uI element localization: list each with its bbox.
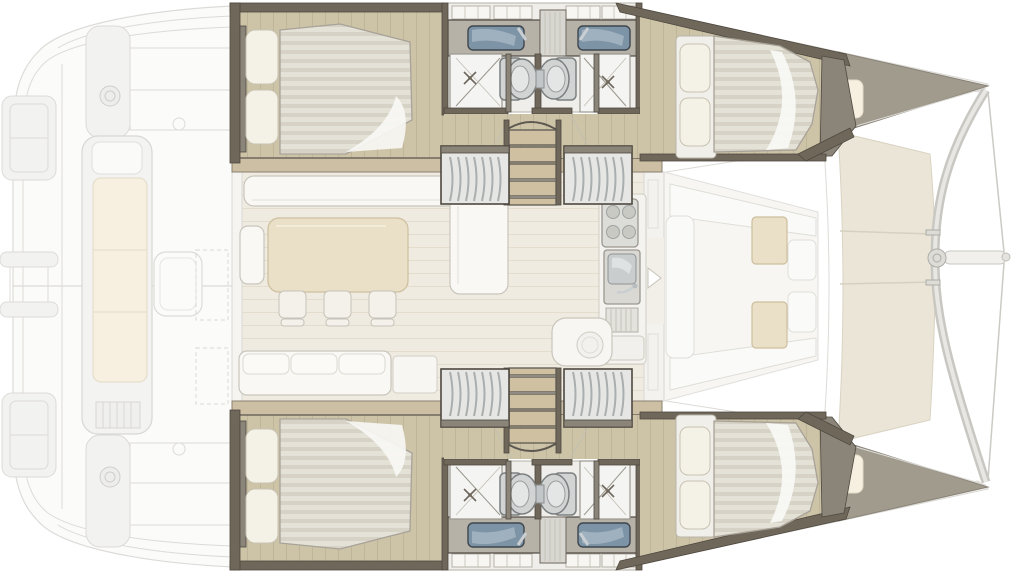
beam-center-fitting	[928, 249, 946, 267]
forward-cockpit-bench	[666, 216, 694, 358]
bench-step-grate	[96, 402, 140, 428]
faucet-base	[633, 284, 638, 289]
sofa-back-cushion	[339, 354, 385, 374]
dining-chair	[279, 291, 306, 326]
saloon-end-bench	[240, 226, 264, 284]
forward-cockpit	[664, 172, 818, 401]
beam-cleat	[926, 230, 940, 235]
bridle-line	[988, 92, 1004, 252]
bridle-line	[988, 263, 1004, 480]
floorplan-canvas	[0, 0, 1024, 573]
forward-cockpit-table	[752, 302, 787, 348]
dining-chair	[324, 291, 351, 326]
forward-cockpit-seat	[788, 292, 816, 332]
chart-corner-unit	[552, 318, 612, 366]
trampoline	[838, 132, 935, 442]
davit-bar	[0, 252, 58, 267]
floorplan-page	[0, 0, 1024, 573]
saloon-bench-sofa	[239, 351, 391, 395]
forward-cockpit-table	[752, 217, 787, 264]
dining-chair	[369, 291, 396, 326]
davit-bar	[0, 302, 58, 317]
bowsprit	[944, 251, 1006, 264]
exterior-decks	[0, 6, 233, 567]
galley-sink	[604, 250, 640, 304]
aft-cockpit-table	[154, 252, 202, 316]
bowsprit-tip	[1002, 253, 1010, 261]
saloon	[232, 172, 664, 401]
sofa-back-cushion	[291, 354, 337, 374]
bridgedeck-forward-edge	[824, 148, 829, 426]
round-stool	[577, 332, 603, 358]
sofa-back-cushion	[243, 354, 289, 374]
burner-icon	[623, 226, 636, 239]
aft-cockpit-bench	[82, 136, 152, 434]
forward-crossbeam	[935, 90, 986, 482]
burner-icon	[607, 226, 620, 239]
bench-cushion	[93, 178, 147, 382]
bench-end-pad	[92, 142, 142, 174]
saloon-dining-table	[268, 218, 408, 292]
crossbeam-highlight	[935, 90, 986, 482]
beam-cleat	[926, 280, 940, 285]
forward-cockpit-seat	[788, 240, 816, 280]
saloon-side-unit	[393, 356, 437, 393]
burner-icon	[623, 206, 636, 219]
stove	[602, 199, 638, 247]
burner-icon	[607, 206, 620, 219]
